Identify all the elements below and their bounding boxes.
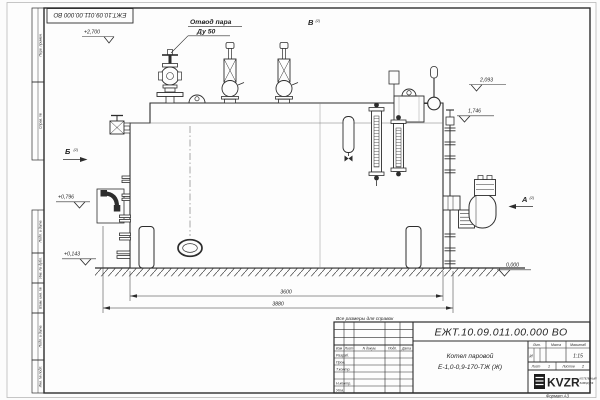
sheet-label: Лист	[531, 365, 541, 369]
title-doc-number: ЕЖТ.10.09.011.00.000 ВО	[434, 327, 567, 339]
burner-housing	[469, 194, 496, 228]
elevation-pipe-value: 1,746	[468, 108, 481, 114]
row-prov: Пров.	[336, 360, 345, 364]
manhole	[178, 240, 202, 257]
view-a-sub: (2)	[530, 196, 535, 200]
margin-stamp-inv-dubl: Инв. № дубл.	[39, 257, 43, 279]
callout-line2: Ду 50	[196, 29, 216, 36]
lit-label: Лит.	[532, 343, 541, 347]
burner-motor	[475, 180, 496, 196]
margin-stamp-podp-data-1: Подп. и дата	[39, 220, 43, 242]
product-name-line1: Котел паровой	[447, 352, 494, 360]
sheets-label: Листов	[561, 365, 575, 369]
elevation-ground-value: 0,000	[506, 262, 519, 268]
doc-number-top: ЕЖТ.10.09.011.00.000 ВО	[53, 11, 126, 18]
margin-stamp-inv-podl: Инв. № подл.	[39, 366, 43, 388]
row-nkontr: Н.контр.	[336, 381, 351, 385]
skid-support-left	[139, 227, 154, 269]
reference-note: Все размеры для справок	[336, 316, 394, 322]
margin-stamp-perv-primen: Перв. примен.	[39, 33, 43, 56]
dim-overall-value: 3880	[272, 301, 284, 307]
elevation-dome-value: 2,093	[479, 77, 493, 83]
view-b-sub: (2)	[74, 148, 79, 152]
row-utv: Утв.	[336, 388, 344, 392]
kvzr-tagline-2: ЗАВОД РФ	[580, 381, 595, 385]
col-doc: N докум.	[363, 346, 377, 350]
col-izm: Изм	[336, 346, 343, 350]
scale-label: Масштаб	[570, 343, 586, 347]
row-razrab: Разраб.	[336, 353, 349, 357]
view-b-letter: Б	[65, 147, 71, 156]
callout-line1: Отвод пара	[190, 18, 232, 26]
elevation-top-value: +2,700	[84, 30, 100, 36]
view-a-letter: А	[521, 195, 527, 204]
skid-support-right	[406, 227, 421, 269]
curled-pipe	[428, 97, 441, 110]
sample-vessel	[343, 117, 354, 153]
view-v-sub: (2)	[316, 19, 321, 23]
row-tkontr: Т.контр.	[336, 367, 351, 371]
col-podp: Подп.	[388, 346, 397, 350]
view-v-letter: В	[308, 18, 314, 27]
dim-shell-value: 3600	[280, 289, 292, 295]
product-name-line2: Е-1,0-0,9-170-ТЖ (Ж)	[438, 364, 502, 371]
margin-stamp-vzam-inv: Взам. инв. №	[39, 287, 43, 309]
elevation-mid-value: +0,796	[58, 194, 74, 200]
margin-stamp-podp-data-2: Подп. и дата	[39, 325, 43, 347]
kvzr-logo-text: KVZR	[547, 376, 580, 390]
margin-stamp-sprav-no: Справ. №	[39, 113, 43, 129]
mass-label: Масса	[551, 343, 561, 347]
drawing-sheet: Перв. примен. Справ. № Подп. и дата Инв.…	[0, 0, 600, 400]
col-list: Лист	[344, 346, 354, 350]
ground-hatch	[95, 268, 500, 276]
kvzr-tagline-1: КОТЕЛЬНЫЙ	[580, 377, 597, 381]
col-data: Дата	[401, 346, 411, 350]
format-label: Формат А3	[546, 393, 570, 398]
scale-value: 1:15	[573, 354, 583, 360]
elevation-low-value: +0,143	[64, 251, 80, 257]
sheet-value: 1	[548, 364, 550, 369]
